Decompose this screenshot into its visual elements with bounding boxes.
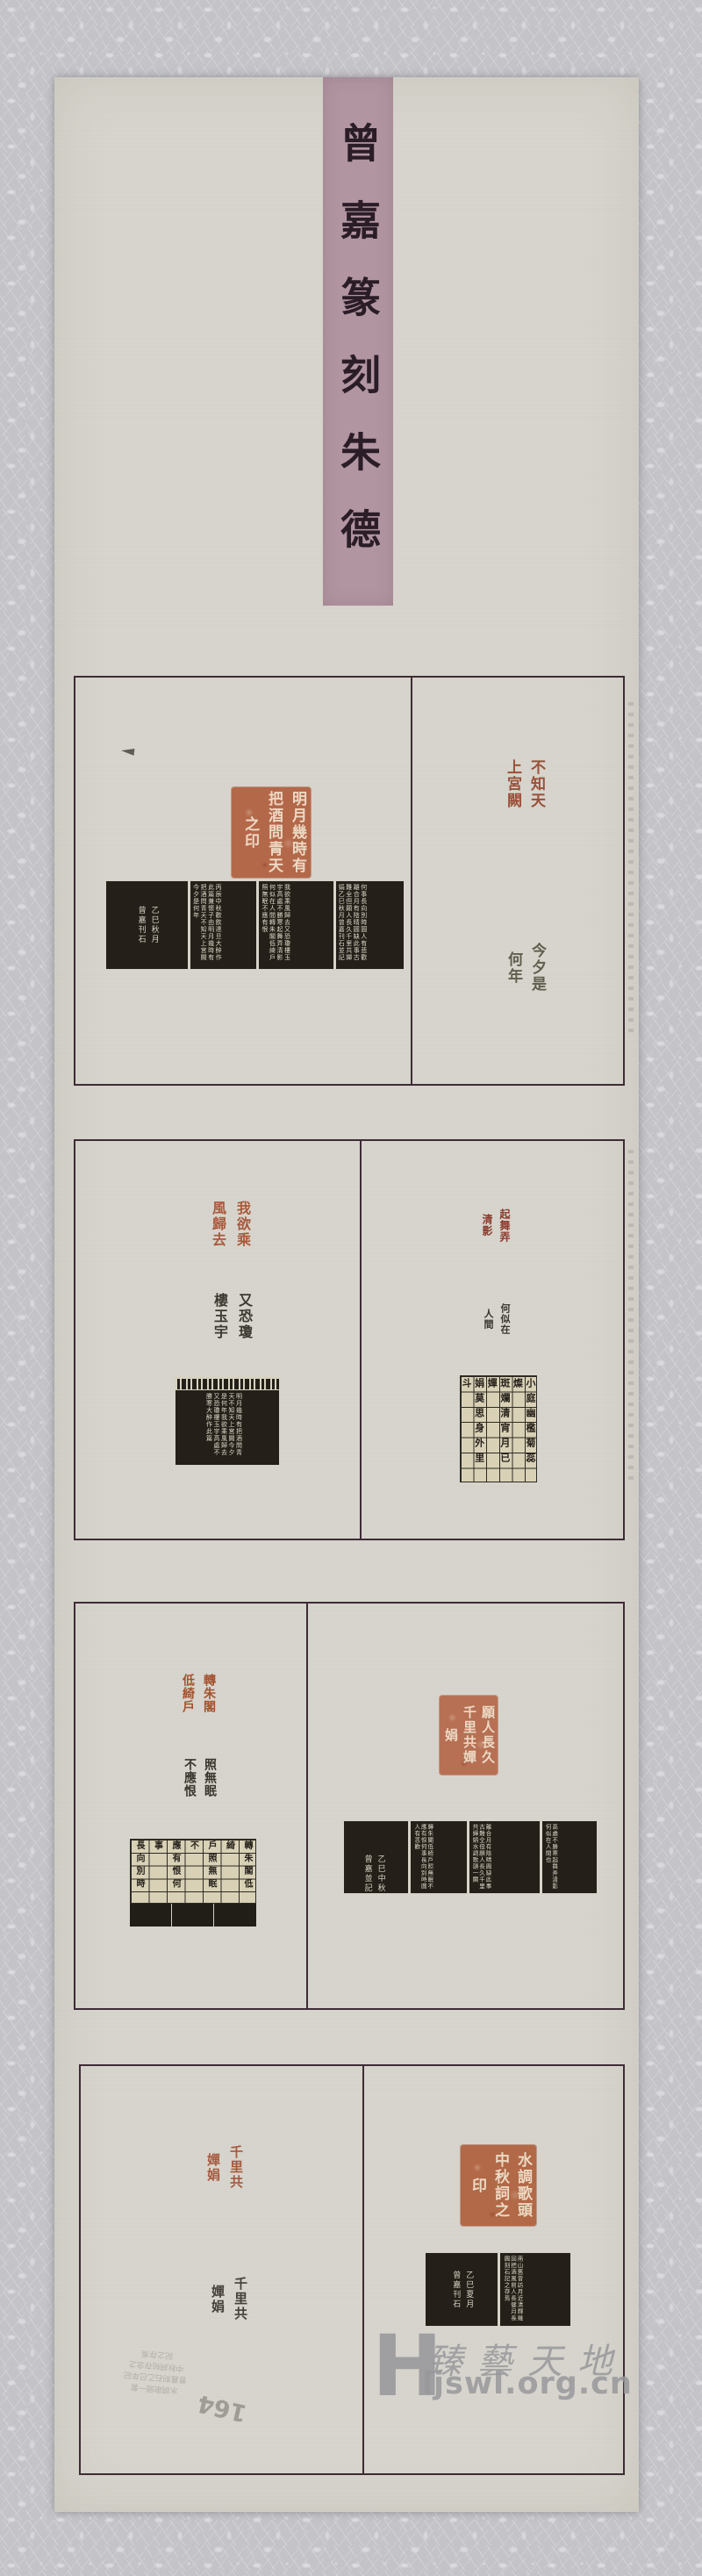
seal-impression-red-small: 不知天上宮闕 [496,757,548,812]
rubbing-signature-text: 乙巳秋月 曾嘉刊石 [106,881,188,969]
rubbing-text: 我欲乘風歸去又恐瓊樓玉宇高處不勝寒起舞弄清影何似在人間轉朱閣低綺戶照無眠不應有恨 [259,881,292,969]
title-calligraphy: 曾嘉篆刻朱德 [323,90,393,618]
rubbing-text: 丙辰中秋歡飲達旦大醉作此篇兼懷子由明月幾時有把酒問青天不知天上宮闕今夕是何年 [190,881,224,969]
seal-impression-black: 照無眠不應恨 [170,1753,219,1803]
rubbing-segment: 丙辰中秋歡飲達旦大醉作此篇兼懷子由明月幾時有把酒問青天不知天上宮闕今夕是何年 [190,881,256,969]
rubbing-segment-signature: 乙巳秋月 曾嘉刊石 [106,881,188,969]
seal-impression-red-large: 明月幾時有把酒問青天之印 [232,787,311,878]
ink-rubbing-meander-border: 明月幾時有把酒問青天不知天上宮闕今夕是何年我欲乘風歸去又恐瓊樓玉宇高處不勝寒大醉… [175,1377,279,1465]
album-leaf-3: 轉朱閣低綺戶 照無眠不應恨 轉朱閣低綺 戶照無眠不 應有恨何事 長向別時圓 人有… [74,1602,625,2010]
rubbing-black-base [130,1904,256,1927]
stone-rubbing-poem-grid: 小庭幽檻菊蕊燦 斑斕清宵月已嬋 娟莫思身外里斗 尊前臨花長好人 長健月長圓乙巳 … [460,1375,537,1482]
stone-rubbing-poem-grid: 轉朱閣低綺 戶照無眠不 應有恨何事 長向別時圓 人有悲歡離 合月有陰晴 嬋娟曾嘉… [130,1839,256,1904]
ink-rubbing-strip: 乙巳中秋 曾嘉並記 轉朱閣低綺戶照無眠不應有恨何事長向別時圓人有悲歡 離合月有陰… [344,1821,597,1893]
rubbing-segment: 南山舊曾訪月近清輝幾回把酒風前人長健月長圓刻石記之存焉 [500,2253,570,2326]
watermark-url-text: ljswl.org.cn [422,2366,633,2401]
seal-impression-red: 我欲乘風歸去 [197,1197,254,1251]
seal-impression-gray: 千里共嬋娟 [202,2271,252,2328]
scroll-paper: 曾嘉篆刻朱德 明月幾時有把酒問青天之印 乙巳秋月 曾嘉刊石 丙辰中秋歡飲達旦大醉… [54,77,639,2512]
seal-impression-red-tall: 願人長久千里共嬋娟 [440,1696,498,1775]
seal-impression-red-large: 水調歌頭中秋詞之印 [461,2145,536,2226]
seal-impression-black-small: 何似在人間 [473,1301,513,1338]
seal-impression-black: 又恐瓊樓玉宇 [200,1288,256,1345]
rubbing-signature-text: 乙巳中秋 曾嘉並記 [344,1821,408,1893]
rubbing-text: 南山舊曾訪月近清輝幾回把酒風前人長健月長圓刻石記之存焉 [500,2253,524,2326]
rubbing-text: 轉朱閣低綺戶照無眠不應有恨何事長向別時圓人有悲歡 [411,1821,434,1893]
rubbing-segment: 何事長向別時圓人有悲歡離合月有陰晴圓缺此事古難全但願人長久千里共嬋娟乙巳秋月曾嘉… [336,881,404,969]
album-leaf-1: 明月幾時有把酒問青天之印 乙巳秋月 曾嘉刊石 丙辰中秋歡飲達旦大醉作此篇兼懷子由… [74,676,625,1086]
seal-impression-olive: 今夕是何年 [496,939,548,996]
seal-impression-red: 轉朱閣低綺戶 [168,1670,219,1717]
rubbing-segment: 高處不勝寒起舞弄清影何似在人間也 [542,1821,597,1893]
title-strip: 曾嘉篆刻朱德 [323,77,393,606]
rubbing-segment: 離合月有陰晴圓缺此事古難全但願人長久千里共嬋娟水調歌頭一闋 [469,1821,540,1893]
leaf-3-center-fold [306,1604,308,2008]
album-leaf-2: 我欲乘風歸去 又恐瓊樓玉宇 明月幾時有把酒問青天不知天上宮闕今夕是何年我欲乘風歸… [74,1139,625,1540]
margin-marks-top [628,702,634,1036]
leaf-4-center-fold [362,2066,364,2473]
rubbing-text: 離合月有陰晴圓缺此事古難全但願人長久千里共嬋娟水調歌頭一闋 [469,1821,493,1893]
seal-impression-red: 千里共嬋娟 [197,2139,247,2196]
rubbing-segment-signature: 乙巳夏月 曾嘉刊石 [426,2253,498,2326]
paper-flaw-mark [121,747,135,756]
margin-marks-mid [628,1150,634,1483]
album-leaf-4: 千里共嬋娟 千里共嬋娟 水調歌頭中秋詞之印 乙巳夏月 曾嘉刊石 南山舊曾訪月近清… [79,2064,625,2475]
rubbing-segment-signature: 乙巳中秋 曾嘉並記 [344,1821,408,1893]
leaf-2-center-fold [360,1141,362,1539]
ink-rubbing-strip: 乙巳秋月 曾嘉刊石 丙辰中秋歡飲達旦大醉作此篇兼懷子由明月幾時有把酒問青天不知天… [106,881,404,969]
scroll-photo: 曾嘉篆刻朱德 明月幾時有把酒問青天之印 乙巳秋月 曾嘉刊石 丙辰中秋歡飲達旦大醉… [0,0,702,2576]
leaf-1-center-fold [411,678,412,1084]
rubbing-segment: 轉朱閣低綺戶照無眠不應有恨何事長向別時圓人有悲歡 [411,1821,466,1893]
greek-key-border [175,1377,279,1390]
rubbing-text: 何事長向別時圓人有悲歡離合月有陰晴圓缺此事古難全但願人長久千里共嬋娟乙巳秋月曾嘉… [336,881,369,969]
rubbing-text: 高處不勝寒起舞弄清影何似在人間也 [542,1821,559,1893]
rubbing-signature-text: 乙巳夏月 曾嘉刊石 [426,2253,498,2326]
rubbing-text: 明月幾時有把酒問青天不知天上宮闕今夕是何年我欲乘風歸去又恐瓊樓玉宇高處不勝寒大醉… [175,1390,245,1465]
ink-rubbing-strip: 乙巳夏月 曾嘉刊石 南山舊曾訪月近清輝幾回把酒風前人長健月長圓刻石記之存焉 [426,2253,570,2326]
seal-impression-dark-red: 起舞弄清影 [471,1204,513,1246]
rubbing-segment: 我欲乘風歸去又恐瓊樓玉宇高處不勝寒起舞弄清影何似在人間轉朱閣低綺戶照無眠不應有恨 [259,881,333,969]
